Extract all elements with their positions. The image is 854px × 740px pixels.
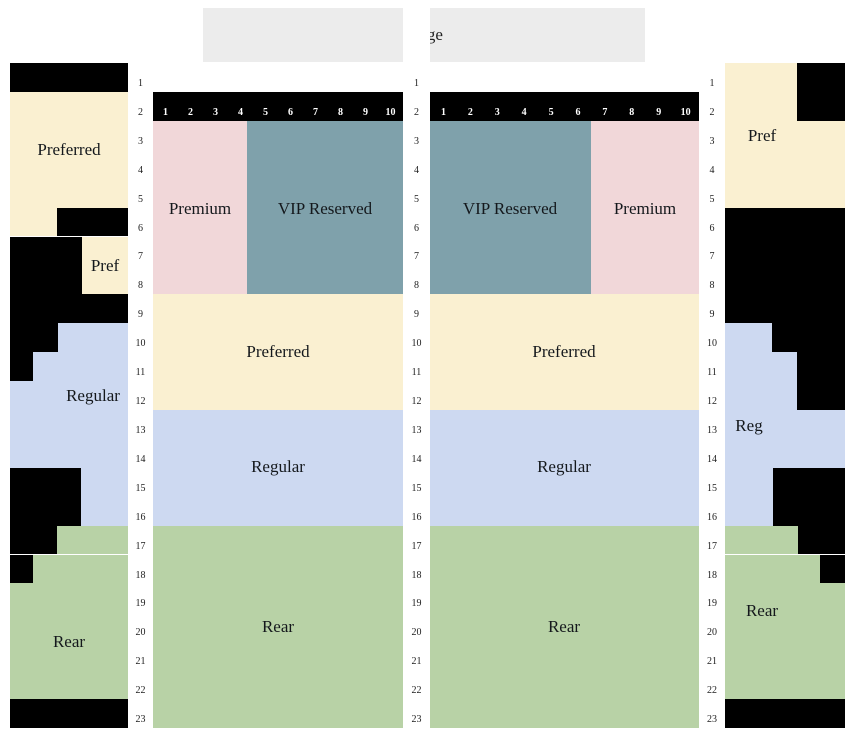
row-number: 5 — [128, 194, 153, 206]
row-number: 1 — [699, 78, 725, 90]
right-unavailable-block — [797, 63, 845, 121]
row-number: 16 — [128, 512, 153, 524]
row-number: 19 — [699, 598, 725, 610]
row-number: 2 — [403, 107, 430, 119]
row-number: 21 — [128, 656, 153, 668]
row-number: 18 — [403, 570, 430, 582]
row-number: 6 — [403, 223, 430, 235]
row-number: 13 — [699, 425, 725, 437]
row-number: 18 — [128, 570, 153, 582]
left-preferred-section[interactable] — [10, 208, 57, 237]
row-number: 3 — [699, 136, 725, 148]
right-regular-section[interactable] — [725, 410, 845, 468]
right-pref-section[interactable] — [725, 63, 797, 121]
right-pref-section[interactable] — [725, 121, 845, 208]
left-unavailable-block — [10, 699, 128, 728]
seat-number: 5 — [538, 107, 565, 118]
row-number: 6 — [128, 223, 153, 235]
row-number: 14 — [699, 454, 725, 466]
row-number: 8 — [128, 280, 153, 292]
row-number: 19 — [403, 598, 430, 610]
row-number: 7 — [699, 251, 725, 263]
seat-number: 3 — [203, 107, 228, 118]
left-unavailable-block — [10, 555, 33, 584]
seat-numbers-left: 12345678910 — [153, 92, 403, 121]
left-unavailable-block — [10, 294, 128, 323]
center-left-rear-section[interactable] — [153, 526, 403, 728]
row-number: 22 — [699, 685, 725, 697]
center-left-premium-section[interactable] — [153, 121, 247, 295]
row-number: 5 — [699, 194, 725, 206]
seat-number: 6 — [565, 107, 592, 118]
right-unavailable-block — [772, 323, 845, 352]
left-unavailable-block — [10, 237, 82, 295]
seat-number: 7 — [591, 107, 618, 118]
left-regular-section[interactable] — [10, 381, 128, 468]
row-number: 21 — [403, 656, 430, 668]
row-number: 7 — [128, 251, 153, 263]
right-unavailable-block — [797, 352, 845, 410]
row-number: 17 — [128, 541, 153, 553]
row-number: 19 — [128, 598, 153, 610]
row-number: 1 — [403, 78, 430, 90]
left-pref-section[interactable] — [82, 237, 128, 295]
row-number: 23 — [403, 714, 430, 726]
row-number: 2 — [128, 107, 153, 119]
row-number: 15 — [403, 483, 430, 495]
row-number: 4 — [403, 165, 430, 177]
row-number: 9 — [403, 309, 430, 321]
row-number: 20 — [403, 627, 430, 639]
left-preferred-section[interactable] — [10, 92, 128, 208]
left-unavailable-block — [10, 63, 128, 92]
left-regular-section[interactable] — [33, 352, 128, 381]
row-number: 11 — [128, 367, 153, 379]
row-number: 20 — [699, 627, 725, 639]
row-number: 11 — [403, 367, 430, 379]
seat-numbers-right: 12345678910 — [430, 92, 699, 121]
seat-number: 3 — [484, 107, 511, 118]
row-number: 17 — [403, 541, 430, 553]
row-number: 10 — [403, 338, 430, 350]
left-rear-section[interactable] — [10, 583, 128, 699]
seat-number: 2 — [178, 107, 203, 118]
seat-number: 4 — [511, 107, 538, 118]
row-number: 4 — [128, 165, 153, 177]
row-numbers-center: 1234567891011121314151617181920212223 — [403, 0, 430, 740]
left-unavailable-block — [10, 352, 33, 381]
row-number: 10 — [699, 338, 725, 350]
seat-number: 9 — [353, 107, 378, 118]
row-number: 14 — [128, 454, 153, 466]
row-number: 23 — [699, 714, 725, 726]
right-unavailable-block — [773, 468, 845, 526]
left-rear-section[interactable] — [57, 526, 128, 555]
row-number: 2 — [699, 107, 725, 119]
left-unavailable-block — [10, 323, 58, 352]
center-right-regular-section[interactable] — [430, 410, 699, 526]
row-number: 15 — [699, 483, 725, 495]
center-right-rear-section[interactable] — [430, 526, 699, 728]
row-number: 23 — [128, 714, 153, 726]
row-number: 5 — [403, 194, 430, 206]
row-number: 21 — [699, 656, 725, 668]
row-number: 18 — [699, 570, 725, 582]
row-number: 7 — [403, 251, 430, 263]
row-number: 8 — [403, 280, 430, 292]
center-left-regular-section[interactable] — [153, 410, 403, 526]
right-unavailable-block — [725, 699, 845, 728]
row-number: 14 — [403, 454, 430, 466]
row-number: 9 — [128, 309, 153, 321]
row-number: 11 — [699, 367, 725, 379]
center-right-premium-section[interactable] — [591, 121, 699, 295]
row-number: 13 — [403, 425, 430, 437]
seat-number: 8 — [328, 107, 353, 118]
seat-number: 10 — [672, 107, 699, 118]
right-regular-section[interactable] — [725, 468, 773, 526]
right-rear-section[interactable] — [725, 583, 845, 699]
row-number: 16 — [699, 512, 725, 524]
seat-number: 5 — [253, 107, 278, 118]
row-number: 4 — [699, 165, 725, 177]
row-number: 3 — [128, 136, 153, 148]
seat-number: 10 — [378, 107, 403, 118]
row-numbers-left: 1234567891011121314151617181920212223 — [128, 0, 153, 740]
right-regular-section[interactable] — [725, 352, 797, 410]
row-number: 12 — [403, 396, 430, 408]
right-regular-section[interactable] — [725, 323, 772, 352]
seat-number: 6 — [278, 107, 303, 118]
left-rear-section[interactable] — [33, 555, 128, 584]
seat-number: 4 — [228, 107, 253, 118]
right-unavailable-block — [820, 555, 845, 584]
center-left-preferred-section[interactable] — [153, 294, 403, 410]
row-numbers-right: 1234567891011121314151617181920212223 — [699, 0, 725, 740]
right-rear-section[interactable] — [725, 526, 798, 555]
right-rear-section[interactable] — [725, 555, 820, 584]
center-right-preferred-section[interactable] — [430, 294, 699, 410]
left-regular-section[interactable] — [81, 468, 128, 526]
center-left-vip-reserved-section[interactable] — [247, 121, 403, 295]
row-number: 8 — [699, 280, 725, 292]
seat-number: 1 — [153, 107, 178, 118]
right-unavailable-block — [798, 526, 845, 555]
row-number: 15 — [128, 483, 153, 495]
seating-chart: Stage Preferred Pref Regular Rear 123456… — [0, 0, 854, 740]
row-number: 6 — [699, 223, 725, 235]
row-number: 22 — [403, 685, 430, 697]
row-number: 3 — [403, 136, 430, 148]
right-unavailable-block — [725, 208, 845, 324]
row-number: 12 — [128, 396, 153, 408]
center-right-vip-reserved-section[interactable] — [430, 121, 591, 295]
left-regular-section[interactable] — [58, 323, 128, 352]
seat-number: 2 — [457, 107, 484, 118]
row-number: 10 — [128, 338, 153, 350]
row-number: 22 — [128, 685, 153, 697]
row-number: 12 — [699, 396, 725, 408]
row-number: 17 — [699, 541, 725, 553]
left-unavailable-block — [57, 208, 128, 237]
row-number: 1 — [128, 78, 153, 90]
seat-number: 8 — [618, 107, 645, 118]
seat-number: 9 — [645, 107, 672, 118]
left-unavailable-block — [10, 526, 57, 555]
left-unavailable-block — [10, 468, 81, 526]
seat-number: 7 — [303, 107, 328, 118]
row-number: 20 — [128, 627, 153, 639]
seat-number: 1 — [430, 107, 457, 118]
row-number: 9 — [699, 309, 725, 321]
row-number: 16 — [403, 512, 430, 524]
row-number: 13 — [128, 425, 153, 437]
